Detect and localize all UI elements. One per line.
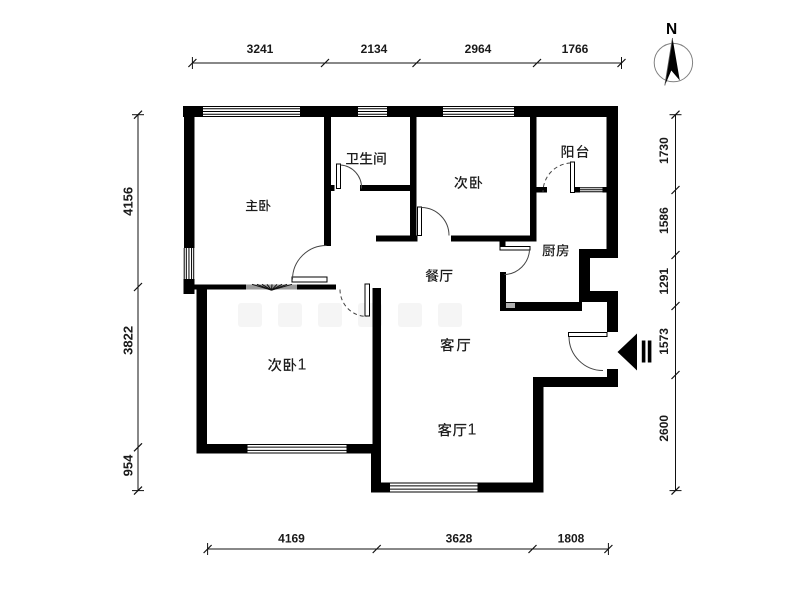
svg-text:2134: 2134 [361, 42, 388, 56]
svg-text:1573: 1573 [657, 328, 671, 355]
svg-text:954: 954 [121, 454, 136, 476]
svg-text:2600: 2600 [657, 415, 671, 442]
svg-text:4156: 4156 [121, 187, 136, 216]
svg-text:1: 1 [298, 356, 307, 373]
svg-text:1730: 1730 [657, 137, 671, 164]
svg-text:1808: 1808 [558, 532, 585, 546]
svg-text:2964: 2964 [465, 42, 492, 56]
svg-text:3628: 3628 [446, 532, 473, 546]
svg-text:1: 1 [468, 421, 477, 438]
svg-text:3822: 3822 [121, 326, 136, 355]
svg-text:3241: 3241 [247, 42, 274, 56]
svg-text:1291: 1291 [657, 268, 671, 295]
svg-text:4169: 4169 [278, 532, 305, 546]
svg-text:1586: 1586 [657, 207, 671, 234]
svg-text:N: N [666, 21, 677, 38]
svg-text:1766: 1766 [562, 42, 589, 56]
